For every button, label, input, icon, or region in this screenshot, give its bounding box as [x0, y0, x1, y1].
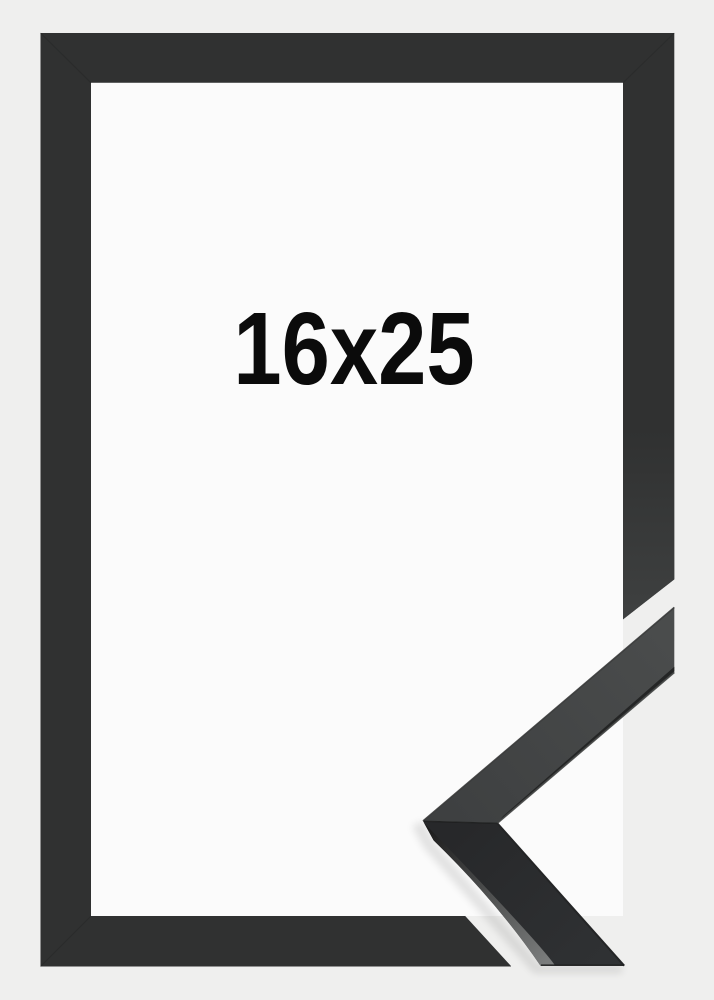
- svg-text:16x25: 16x25: [233, 292, 474, 407]
